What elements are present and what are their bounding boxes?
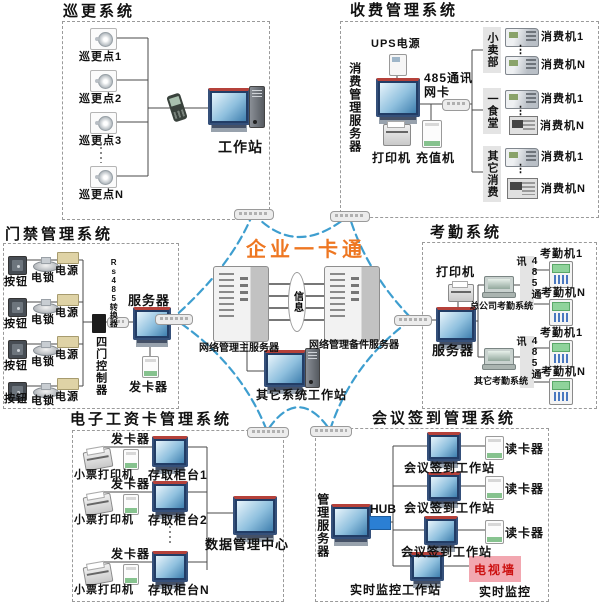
network-adapter-icon	[247, 427, 289, 438]
patrol-point-label: 巡更点1	[79, 51, 122, 64]
patrol-point-label: 巡更点3	[79, 135, 122, 148]
netcard-icon	[442, 99, 470, 111]
attendance-machine-label: 考勤机1	[540, 248, 583, 261]
tv-wall-box: 电视墙	[469, 556, 521, 582]
fee-group-label: 其它消费	[484, 150, 500, 198]
counter-pc-icon	[152, 481, 188, 512]
patrol-point-icon	[90, 28, 117, 50]
info-label: 信息	[290, 291, 305, 313]
card-reader-icon	[485, 520, 504, 544]
attendance-machine-label: 考勤机N	[541, 366, 586, 379]
power-supply-icon	[57, 294, 79, 306]
access-server-label: 服务器	[128, 294, 170, 309]
fee-group-label: 小卖部	[484, 32, 500, 68]
other-workstation-tower-icon	[305, 348, 320, 388]
consumption-machine-label: 消费机1	[541, 151, 584, 164]
consumption-machine-label: 消费机1	[541, 93, 584, 106]
attendance-printer-label: 打印机	[436, 266, 475, 280]
power-supply-label: 电源	[55, 349, 79, 362]
recharge-machine-icon	[422, 120, 442, 148]
signin-workstation-icon	[424, 516, 458, 545]
ellipsis-dots: ⋮	[515, 105, 527, 118]
salary-title: 电子工资卡管理系统	[70, 411, 232, 428]
other-workstation-label: 其它系统工作站	[256, 389, 347, 403]
power-supply-label: 电源	[55, 307, 79, 320]
salary-issuer-label: 发卡器	[111, 433, 150, 447]
hub-icon	[369, 516, 391, 530]
netcard-label-line2: 网卡	[424, 86, 450, 100]
network-adapter-icon	[155, 314, 193, 325]
door-button-icon	[8, 298, 27, 317]
patrol-point-icon	[90, 70, 117, 92]
meeting-title: 会议签到管理系统	[372, 410, 516, 427]
attendance-machine-label: 考勤机1	[540, 327, 583, 340]
attendance-machine-icon	[549, 261, 573, 288]
fee-server-label: 消费管理服务器	[347, 62, 361, 153]
patrol-point-label: 巡更点2	[79, 93, 122, 106]
recharge-label: 充值机	[416, 152, 455, 166]
card-reader-label: 读卡器	[505, 443, 544, 457]
main-title: 企业一卡通	[246, 233, 366, 262]
receipt-printer-label: 小票打印机	[74, 584, 134, 597]
ellipsis-dots: ⋮	[515, 163, 527, 176]
electric-lock-label: 电锁	[31, 314, 55, 327]
ups-icon	[389, 54, 407, 76]
card-issuer-icon	[142, 356, 159, 378]
rs485-converter-label: Rs485转换器	[109, 258, 118, 327]
access-title: 门禁管理系统	[5, 226, 113, 243]
monitor-workstation-label: 实时监控工作站	[350, 584, 441, 598]
other-workstation-icon	[264, 350, 306, 387]
card-reader-icon	[485, 476, 504, 500]
patrol-workstation-tower-icon	[249, 86, 265, 128]
salary-issuer-icon	[123, 564, 139, 585]
signin-workstation-label: 会议签到工作站	[404, 502, 495, 516]
network-adapter-icon	[310, 426, 352, 437]
fee-group-label: 一食堂	[484, 93, 500, 129]
hub-label: HUB	[370, 503, 396, 517]
salary-issuer-icon	[123, 449, 139, 470]
four-door-controller-icon	[92, 314, 106, 333]
patrol-point-icon	[90, 112, 117, 134]
meeting-server-icon	[331, 504, 371, 539]
backup-server-label: 网络管理备件服务器	[309, 340, 399, 352]
attendance-title: 考勤系统	[430, 224, 502, 241]
electric-lock-label: 电锁	[31, 356, 55, 369]
ellipsis-dots: ⋮	[515, 44, 527, 57]
power-supply-label: 电源	[55, 391, 79, 404]
power-supply-icon	[57, 378, 79, 390]
power-supply-icon	[57, 252, 79, 264]
consumption-machine-icon	[509, 116, 538, 135]
electric-lock-label: 电锁	[31, 272, 55, 285]
realtime-monitor-label: 实时监控	[479, 586, 531, 600]
consumption-machine-label: 消费机N	[541, 59, 586, 72]
consumption-machine-label: 消费机N	[541, 183, 586, 196]
door-button-label: 按钮	[4, 393, 28, 406]
card-reader-label: 读卡器	[505, 527, 544, 541]
main-server-label: 网络管理主服务器	[199, 343, 279, 355]
salary-issuer-icon	[123, 494, 139, 515]
receipt-printer-label: 小票打印机	[74, 514, 134, 527]
salary-issuer-label: 发卡器	[111, 478, 150, 492]
patrol-point-icon	[90, 166, 117, 188]
consumption-machine-icon	[505, 56, 539, 75]
backup-server-tower-icon	[324, 266, 380, 342]
salary-issuer-label: 发卡器	[111, 548, 150, 562]
signin-workstation-label: 会议签到工作站	[404, 462, 495, 476]
door-button-label: 按钮	[4, 318, 28, 331]
attendance-server-icon	[436, 307, 476, 342]
attendance-machine-label: 考勤机N	[541, 287, 586, 300]
network-adapter-icon	[394, 315, 432, 326]
branch-pc-label: 总公司考勤系统	[470, 301, 533, 311]
power-supply-icon	[57, 336, 79, 348]
attendance-machine-icon	[549, 299, 573, 326]
network-adapter-icon	[330, 211, 370, 222]
signin-workstation-label: 会议签到工作站	[401, 546, 492, 560]
data-center-pc-icon	[233, 496, 277, 535]
branch-pc-label: 其它考勤系统	[474, 376, 528, 386]
fee-printer-icon	[383, 124, 411, 146]
patrol-point-label: 巡更点N	[79, 189, 124, 202]
door-button-label: 按钮	[4, 276, 28, 289]
fee-title: 收费管理系统	[350, 2, 458, 19]
patrol-title: 巡更系统	[63, 3, 135, 20]
netcard-label-line1: 485通讯	[424, 72, 473, 86]
controller-label: 四门控制器	[94, 336, 107, 396]
patrol-workstation-icon	[208, 88, 250, 125]
data-center-label: 数据管理中心	[205, 538, 289, 553]
power-supply-label: 电源	[55, 265, 79, 278]
door-button-icon	[8, 256, 27, 275]
card-reader-label: 读卡器	[505, 483, 544, 497]
card-issuer-label: 发卡器	[129, 381, 168, 395]
branch-pc-icon	[484, 348, 514, 368]
fee-server-icon	[376, 78, 420, 117]
signin-workstation-icon	[427, 432, 461, 461]
door-button-label: 按钮	[4, 360, 28, 373]
main-server-tower-icon	[213, 266, 269, 342]
consumption-machine-label: 消费机N	[540, 120, 585, 133]
attendance-server-label: 服务器	[432, 344, 474, 359]
attendance-printer-icon	[448, 284, 474, 302]
attendance-machine-icon	[549, 340, 573, 367]
card-reader-icon	[485, 436, 504, 460]
ups-label: UPS电源	[371, 38, 421, 51]
patrol-workstation-label: 工作站	[218, 139, 263, 155]
diagram-canvas: 巡更系统 巡更点1 巡更点2 巡更点3 巡更点N 工作站 收费管理系统 消费管理…	[0, 0, 600, 604]
counter-label: 存取柜台N	[148, 584, 210, 598]
fee-printer-label: 打印机	[372, 152, 411, 166]
consumption-machine-icon	[507, 178, 538, 199]
attendance-machine-icon	[549, 378, 573, 405]
counter-label: 存取柜台1	[148, 469, 208, 483]
counter-label: 存取柜台2	[148, 514, 208, 528]
consumption-machine-label: 消费机1	[541, 31, 584, 44]
counter-pc-icon	[152, 551, 188, 582]
electric-lock-label: 电锁	[31, 395, 55, 408]
network-adapter-icon	[234, 209, 274, 220]
meeting-server-label: 管理服务器	[315, 493, 329, 558]
signin-workstation-icon	[427, 472, 461, 501]
counter-pc-icon	[152, 436, 188, 467]
door-button-icon	[8, 340, 27, 359]
branch-pc-icon	[484, 276, 514, 296]
